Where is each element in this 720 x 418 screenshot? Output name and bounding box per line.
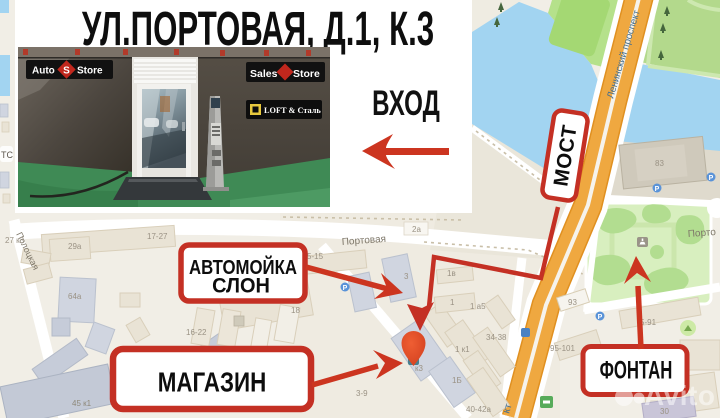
svg-text:34-38: 34-38	[486, 333, 507, 342]
svg-text:95-101: 95-101	[550, 344, 575, 353]
svg-text:1в: 1в	[447, 269, 456, 278]
svg-text:1 а5: 1 а5	[470, 302, 486, 311]
svg-text:Store: Store	[293, 68, 320, 80]
svg-text:Порто: Порто	[687, 227, 716, 240]
svg-text:1Б: 1Б	[452, 376, 462, 385]
svg-text:Store: Store	[77, 66, 103, 77]
svg-text:1: 1	[450, 298, 455, 307]
svg-text:83: 83	[655, 159, 664, 168]
svg-text:1 к1: 1 к1	[455, 345, 470, 354]
svg-text:18: 18	[291, 306, 300, 315]
svg-text:3-9: 3-9	[356, 389, 368, 398]
svg-text:S: S	[63, 66, 70, 77]
svg-text:29а: 29а	[68, 242, 82, 251]
svg-text:2а: 2а	[412, 225, 421, 234]
svg-text:Auto: Auto	[32, 66, 55, 77]
svg-text:45 к1: 45 к1	[72, 399, 92, 408]
svg-text:27 к3: 27 к3	[5, 236, 25, 245]
svg-text:МАГАЗИН: МАГАЗИН	[158, 367, 267, 398]
svg-text:16-22: 16-22	[186, 328, 207, 337]
svg-text:3: 3	[404, 272, 409, 281]
svg-text:64а: 64а	[68, 292, 82, 301]
svg-text:5-15: 5-15	[307, 252, 324, 261]
svg-text:P: P	[709, 175, 714, 182]
svg-text:P: P	[598, 314, 603, 321]
svg-text:40-42а: 40-42а	[466, 405, 491, 414]
svg-text:ВХОД: ВХОД	[372, 85, 440, 123]
svg-text:P: P	[655, 186, 660, 193]
svg-text:к3: к3	[415, 364, 424, 373]
svg-text:LOFT & Сталь: LOFT & Сталь	[264, 106, 321, 115]
svg-text:Avito: Avito	[644, 380, 715, 411]
svg-text:93: 93	[568, 298, 577, 307]
svg-text:17-27: 17-27	[147, 232, 168, 241]
svg-text:Sales: Sales	[250, 68, 278, 80]
svg-text:СЛОН: СЛОН	[212, 274, 270, 298]
svg-text:ТС: ТС	[1, 150, 13, 160]
svg-text:P: P	[343, 285, 348, 292]
